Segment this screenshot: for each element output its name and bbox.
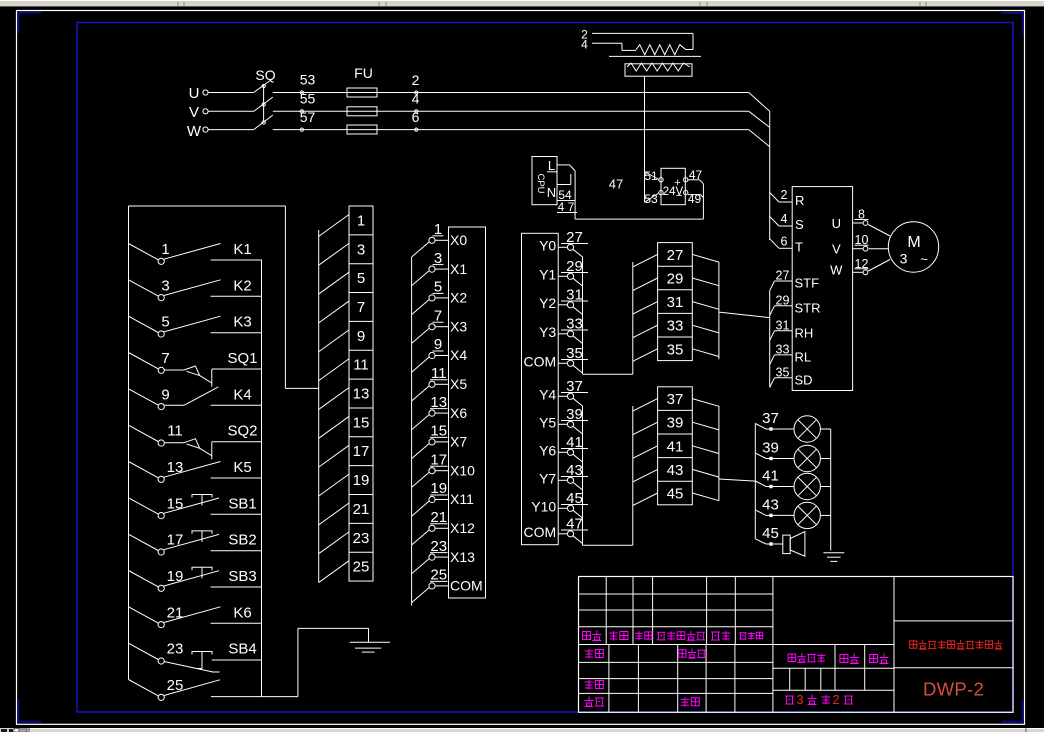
svg-text:N: N (547, 185, 556, 200)
svg-text:15: 15 (353, 414, 370, 431)
svg-text:X5: X5 (450, 376, 467, 392)
svg-text:45: 45 (762, 525, 779, 542)
svg-text:53: 53 (644, 192, 658, 206)
svg-text:11: 11 (353, 357, 369, 374)
svg-text:W: W (187, 123, 202, 140)
svg-text:X7: X7 (450, 434, 467, 450)
svg-text:7: 7 (161, 350, 169, 367)
svg-text:X2: X2 (450, 290, 467, 306)
svg-text:31: 31 (776, 318, 790, 332)
svg-text:6: 6 (781, 234, 788, 248)
svg-text:3: 3 (796, 692, 803, 707)
svg-text:3: 3 (161, 277, 169, 294)
svg-text:2: 2 (832, 692, 839, 707)
svg-text:Y5: Y5 (539, 415, 556, 431)
svg-text:4: 4 (581, 38, 588, 52)
svg-text:FU: FU (354, 65, 373, 81)
svg-text:STF: STF (795, 276, 820, 291)
svg-text:7: 7 (357, 299, 365, 316)
svg-text:R: R (795, 193, 804, 208)
svg-text:SQ2: SQ2 (227, 423, 257, 440)
svg-text:K1: K1 (233, 241, 251, 258)
svg-text:2: 2 (781, 188, 788, 202)
svg-text:29: 29 (776, 293, 790, 307)
svg-text:W: W (830, 263, 843, 278)
svg-text:Y1: Y1 (539, 267, 556, 283)
svg-text:13: 13 (353, 386, 370, 403)
svg-text:RH: RH (795, 325, 814, 340)
svg-text:9: 9 (161, 386, 169, 403)
svg-text:DWP-2: DWP-2 (923, 679, 984, 700)
svg-text:U: U (832, 216, 841, 231)
svg-text:11: 11 (167, 423, 183, 440)
svg-text:K6: K6 (233, 604, 251, 621)
svg-text:K3: K3 (233, 314, 251, 331)
svg-text:Y10: Y10 (531, 499, 556, 515)
svg-text:4: 4 (412, 91, 420, 107)
svg-text:X1: X1 (450, 261, 467, 277)
svg-text:23: 23 (167, 641, 184, 658)
svg-text:35: 35 (776, 365, 790, 379)
svg-text:L: L (548, 158, 555, 173)
svg-text:K4: K4 (233, 386, 251, 403)
svg-text:CPU: CPU (535, 173, 546, 193)
svg-text:−: − (676, 190, 682, 202)
svg-text:K5: K5 (233, 459, 251, 476)
svg-text:45: 45 (667, 486, 684, 503)
svg-text:17: 17 (353, 443, 370, 460)
svg-text:43: 43 (667, 462, 684, 479)
svg-text:41: 41 (667, 438, 684, 455)
svg-text:M: M (907, 234, 920, 251)
svg-text:23: 23 (353, 530, 370, 547)
svg-text:Y7: Y7 (539, 471, 556, 487)
svg-text:V: V (832, 242, 841, 257)
svg-text:13: 13 (167, 459, 184, 476)
svg-text:4 7: 4 7 (558, 200, 575, 214)
svg-text:37: 37 (667, 391, 684, 408)
svg-text:COM: COM (524, 354, 557, 370)
svg-text:2: 2 (412, 72, 420, 88)
svg-text:4: 4 (781, 212, 788, 226)
svg-text:X4: X4 (450, 347, 467, 363)
svg-text:SB4: SB4 (228, 641, 256, 658)
svg-text:X11: X11 (450, 491, 474, 507)
svg-text:1: 1 (161, 241, 169, 258)
svg-text:Y6: Y6 (539, 443, 556, 459)
svg-text:Y3: Y3 (539, 324, 556, 340)
svg-text:X0: X0 (450, 232, 467, 248)
svg-text:RL: RL (795, 349, 812, 364)
svg-text:Y0: Y0 (539, 238, 556, 254)
svg-text:53: 53 (300, 72, 316, 88)
svg-text:~: ~ (920, 252, 928, 267)
svg-text:3: 3 (900, 251, 908, 267)
svg-text:43: 43 (762, 496, 779, 513)
svg-text:5: 5 (161, 314, 169, 331)
svg-text:SQ: SQ (255, 67, 275, 83)
svg-text:39: 39 (762, 440, 779, 457)
svg-text:K2: K2 (233, 277, 251, 294)
svg-text:33: 33 (667, 318, 684, 335)
svg-text:Y2: Y2 (539, 295, 556, 311)
svg-text:COM: COM (524, 524, 557, 540)
svg-text:X12: X12 (450, 520, 475, 536)
svg-text:1: 1 (357, 212, 365, 229)
svg-text:SB3: SB3 (228, 568, 256, 585)
svg-text:STR: STR (795, 300, 821, 315)
svg-text:S: S (795, 217, 804, 232)
svg-text:SQ1: SQ1 (227, 350, 257, 367)
svg-text:27: 27 (776, 269, 790, 283)
svg-text:51: 51 (644, 169, 658, 183)
svg-text:49: 49 (688, 192, 702, 206)
svg-text:COM: COM (450, 578, 483, 594)
svg-text:39: 39 (667, 415, 684, 432)
svg-text:3: 3 (357, 241, 365, 258)
svg-text:27: 27 (667, 247, 684, 264)
svg-text:U: U (189, 85, 200, 102)
svg-text:Y4: Y4 (539, 387, 556, 403)
svg-text:31: 31 (667, 294, 684, 311)
svg-text:47: 47 (689, 168, 703, 182)
svg-text:6: 6 (412, 109, 420, 125)
svg-text:V: V (189, 104, 199, 121)
svg-text:X13: X13 (450, 549, 475, 565)
svg-text:41: 41 (762, 468, 779, 485)
svg-text:X3: X3 (450, 318, 467, 334)
svg-text:SB2: SB2 (228, 532, 256, 549)
svg-text:35: 35 (667, 341, 684, 358)
svg-text:37: 37 (762, 410, 779, 427)
svg-text:SB1: SB1 (228, 495, 256, 512)
svg-text:9: 9 (357, 328, 365, 345)
svg-text:19: 19 (353, 472, 370, 489)
svg-text:33: 33 (776, 342, 790, 356)
svg-text:21: 21 (353, 501, 370, 518)
svg-text:47: 47 (609, 177, 623, 192)
svg-text:29: 29 (667, 271, 684, 288)
svg-text:25: 25 (353, 559, 370, 576)
svg-text:SD: SD (795, 372, 813, 387)
svg-text:21: 21 (167, 604, 184, 621)
svg-text:T: T (795, 239, 803, 254)
svg-text:X10: X10 (450, 462, 475, 478)
svg-text:5: 5 (357, 270, 365, 287)
svg-text:25: 25 (167, 677, 184, 694)
svg-text:X6: X6 (450, 405, 467, 421)
